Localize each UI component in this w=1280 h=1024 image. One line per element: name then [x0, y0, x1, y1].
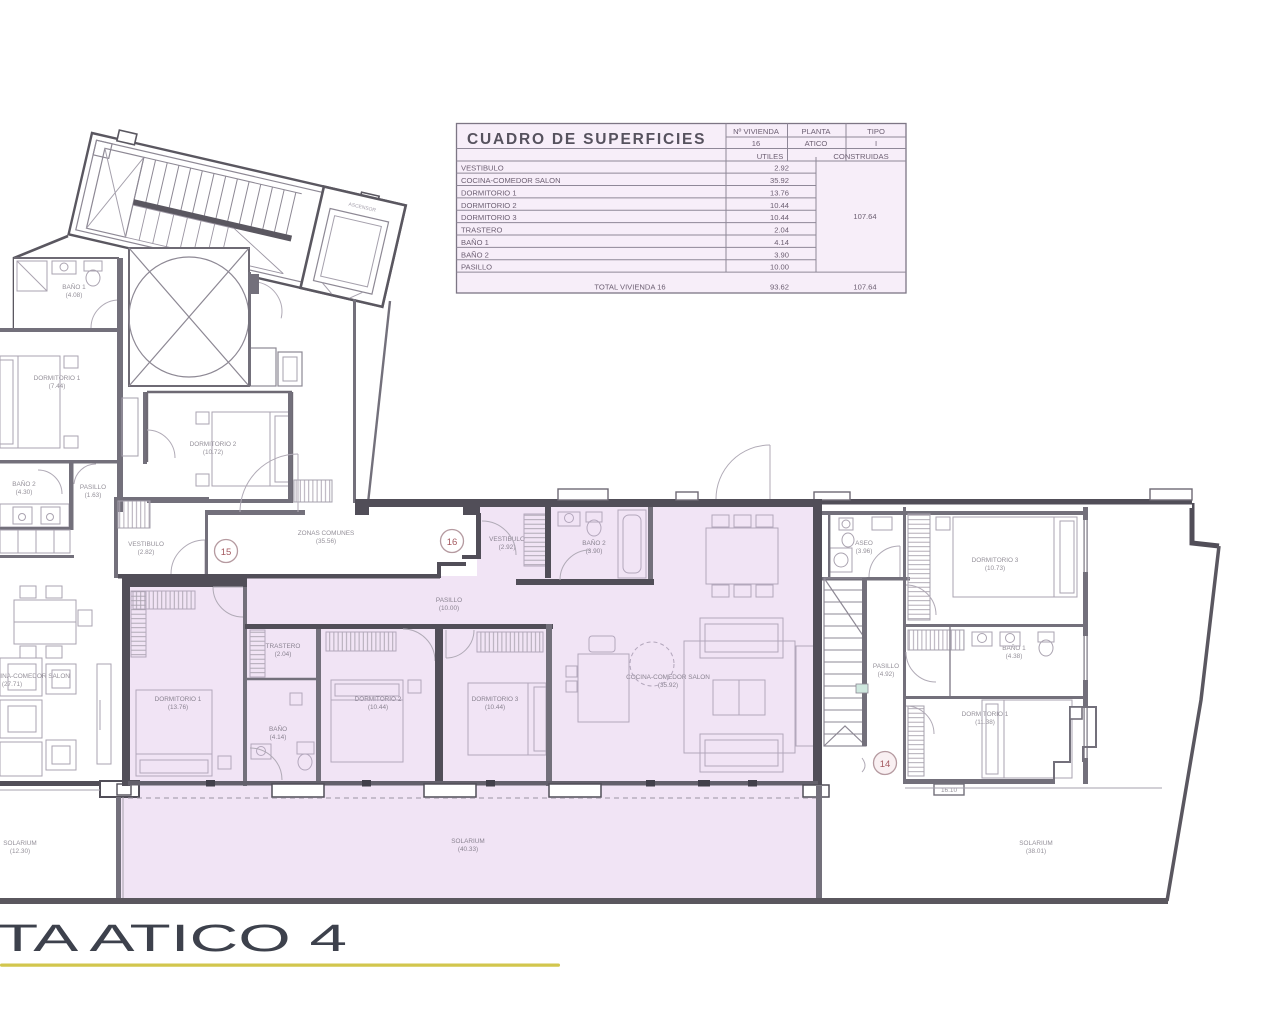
svg-text:CUADRO DE SUPERFICIES: CUADRO DE SUPERFICIES [467, 131, 706, 148]
svg-text:16: 16 [447, 537, 458, 548]
svg-text:DORMITORIO 3: DORMITORIO 3 [472, 696, 519, 703]
svg-text:BAÑO 2: BAÑO 2 [461, 250, 489, 259]
svg-text:ASEO: ASEO [855, 540, 873, 547]
svg-text:DORMITORIO 2: DORMITORIO 2 [190, 441, 237, 448]
svg-text:PLANTA: PLANTA [802, 127, 832, 136]
svg-text:DORMITORIO 2: DORMITORIO 2 [461, 201, 517, 210]
svg-text:2.92: 2.92 [774, 164, 789, 173]
svg-text:PASILLO: PASILLO [461, 263, 492, 272]
svg-text:DORMITORIO 1: DORMITORIO 1 [155, 696, 202, 703]
svg-text:VESTIBULO: VESTIBULO [489, 536, 525, 543]
svg-text:DORMITORIO 3: DORMITORIO 3 [461, 213, 517, 222]
svg-text:(4.30): (4.30) [16, 489, 33, 496]
svg-text:(40.33): (40.33) [458, 846, 478, 853]
svg-text:(38.01): (38.01) [1026, 848, 1046, 855]
svg-text:DORMITORIO 1: DORMITORIO 1 [461, 188, 517, 197]
svg-text:10.44: 10.44 [770, 213, 789, 222]
svg-text:TA ATICO 4: TA ATICO 4 [0, 918, 347, 960]
svg-text:BAÑO 2: BAÑO 2 [12, 479, 36, 488]
svg-text:I: I [875, 139, 877, 148]
svg-text:13.76: 13.76 [770, 188, 789, 197]
svg-text:DORMITORIO 1: DORMITORIO 1 [962, 711, 1009, 718]
svg-text:SOLARIUM: SOLARIUM [451, 838, 484, 845]
svg-text:(11.38): (11.38) [975, 719, 995, 726]
svg-text:(3.96): (3.96) [856, 548, 873, 555]
svg-text:ZONAS COMUNES: ZONAS COMUNES [298, 530, 354, 537]
svg-text:(10.73): (10.73) [985, 565, 1005, 572]
svg-text:PASILLO: PASILLO [80, 484, 106, 491]
svg-text:TIPO: TIPO [867, 127, 885, 136]
svg-text:SOLARIUM: SOLARIUM [3, 840, 36, 847]
svg-text:TRASTERO: TRASTERO [461, 226, 502, 235]
svg-text:93.62: 93.62 [770, 283, 789, 292]
svg-text:UTILES: UTILES [757, 152, 784, 161]
svg-text:(1.63): (1.63) [85, 492, 102, 499]
svg-text:(35.56): (35.56) [316, 538, 336, 545]
svg-text:ATICO: ATICO [805, 139, 828, 148]
svg-text:(2.92): (2.92) [499, 544, 516, 551]
svg-text:(2.04): (2.04) [275, 651, 292, 658]
svg-text:BAÑO 1: BAÑO 1 [1002, 643, 1026, 652]
svg-text:SOLARIUM: SOLARIUM [1019, 840, 1052, 847]
svg-text:(7.44): (7.44) [49, 383, 66, 390]
svg-text:COCINA-COMEDOR SALON: COCINA-COMEDOR SALON [461, 176, 561, 185]
svg-text:Nº VIVIENDA: Nº VIVIENDA [733, 127, 780, 136]
svg-text:(3.90): (3.90) [586, 548, 603, 555]
svg-text:CONSTRUIDAS: CONSTRUIDAS [833, 152, 888, 161]
svg-text:3.90: 3.90 [774, 250, 789, 259]
svg-text:14: 14 [880, 759, 891, 770]
svg-text:(4.14): (4.14) [270, 734, 287, 741]
svg-text:PASILLO: PASILLO [436, 597, 462, 604]
svg-text:(13.76): (13.76) [168, 704, 188, 711]
svg-text:(10.72): (10.72) [203, 449, 223, 456]
svg-text:(4.92): (4.92) [878, 671, 895, 678]
svg-text:(10.44): (10.44) [368, 704, 388, 711]
svg-text:(10.00): (10.00) [439, 605, 459, 612]
svg-text:35.92: 35.92 [770, 176, 789, 185]
svg-text:2.04: 2.04 [774, 226, 789, 235]
svg-text:107.64: 107.64 [853, 283, 876, 292]
svg-text:(10.44): (10.44) [485, 704, 505, 711]
svg-text:VESTIBULO: VESTIBULO [128, 541, 164, 548]
svg-text:10.44: 10.44 [770, 201, 789, 210]
svg-text:(35.92): (35.92) [658, 682, 678, 689]
svg-text:BAÑO 1: BAÑO 1 [461, 238, 489, 247]
svg-text:COCINA-COMEDOR SALON: COCINA-COMEDOR SALON [0, 673, 70, 680]
svg-text:VESTIBULO: VESTIBULO [461, 164, 504, 173]
svg-text:BAÑO 1: BAÑO 1 [62, 282, 86, 291]
svg-text:10.00: 10.00 [770, 263, 789, 272]
svg-text:TOTAL VIVIENDA 16: TOTAL VIVIENDA 16 [594, 283, 665, 292]
svg-text:(12.30): (12.30) [10, 848, 30, 855]
svg-text:PASILLO: PASILLO [873, 663, 899, 670]
svg-text:4.14: 4.14 [774, 238, 789, 247]
svg-text:DORMITORIO 1: DORMITORIO 1 [34, 375, 81, 382]
svg-text:BAÑO 2: BAÑO 2 [582, 538, 606, 547]
svg-text:BAÑO: BAÑO [269, 724, 287, 733]
svg-text:15: 15 [221, 547, 232, 558]
svg-text:(4.08): (4.08) [66, 292, 83, 299]
svg-text:16: 16 [752, 139, 760, 148]
svg-text:(4.38): (4.38) [1006, 653, 1023, 660]
svg-text:TRASTERO: TRASTERO [266, 643, 301, 650]
svg-text:107.64: 107.64 [853, 212, 876, 221]
svg-text:(27.71): (27.71) [2, 681, 22, 688]
svg-text:(2.82): (2.82) [138, 549, 155, 556]
svg-text:DORMITORIO 3: DORMITORIO 3 [972, 557, 1019, 564]
svg-text:COCINA-COMEDOR SALON: COCINA-COMEDOR SALON [626, 674, 710, 681]
